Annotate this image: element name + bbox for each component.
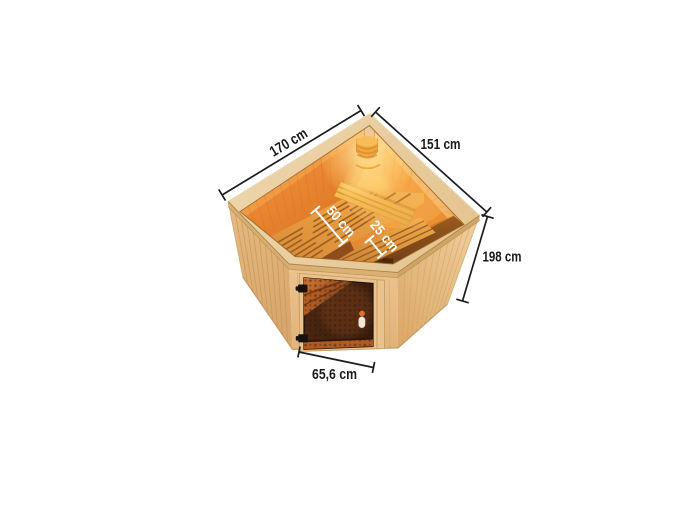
- svg-text:198 cm: 198 cm: [483, 250, 522, 266]
- svg-text:65,6 cm: 65,6 cm: [312, 367, 357, 383]
- svg-text:151 cm: 151 cm: [421, 137, 461, 153]
